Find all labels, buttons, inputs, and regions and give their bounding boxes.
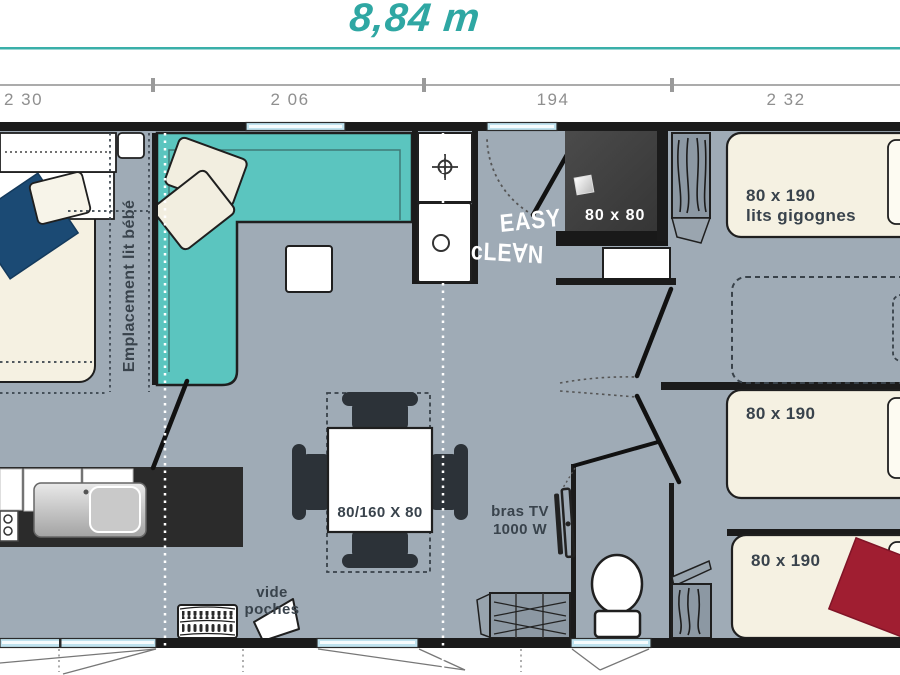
coffee-table (286, 246, 332, 292)
hall-wardrobe (477, 593, 570, 638)
chair (302, 454, 330, 510)
slatted-rack-icon (182, 624, 233, 632)
shower-drain-icon (574, 175, 594, 195)
tv-label-line1: bras TV (478, 503, 562, 520)
pillow (888, 140, 900, 224)
vide-poches-label-line2: poches (240, 601, 304, 618)
chair (352, 530, 408, 558)
pillow (888, 398, 900, 478)
dim-label-3: 194 (513, 90, 593, 110)
dim-tick (151, 78, 155, 92)
dim-label-4: 2 32 (746, 90, 826, 110)
nightstand (118, 133, 144, 158)
utility-unit (418, 133, 472, 202)
headboard (0, 133, 116, 172)
floorplan-page: 8,84 m 2 30 2 06 194 2 32 Emplacement li… (0, 0, 900, 675)
dim-tick (670, 78, 674, 92)
exterior-wall-top (0, 122, 900, 131)
chair (352, 402, 408, 430)
bathroom-cabinet (603, 248, 670, 282)
shower-80x80 (556, 131, 668, 246)
kitchen-cabinet (0, 469, 22, 510)
toilet-tank (595, 611, 640, 637)
baby-bed-zone-label: Emplacement lit bébé (121, 169, 139, 403)
dim-tick (422, 78, 426, 92)
washbasin-unit (418, 203, 471, 282)
table-size-label: 80/160 X 80 (330, 504, 430, 521)
tv-label-line2: 1000 W (478, 521, 562, 538)
bunk-bed-size-label: 80 x 190 (746, 186, 815, 206)
partition-wall (152, 133, 158, 385)
bathroom-wall (657, 131, 668, 241)
slatted-rack (178, 605, 237, 638)
dim-label-2: 2 06 (250, 90, 330, 110)
bottom-bed-size-label: 80 x 190 (751, 551, 820, 571)
sink-basin (90, 487, 140, 532)
toilet-bowl (592, 555, 642, 613)
dim-label-1: 2 30 (4, 90, 43, 110)
wardrobe-top (672, 133, 710, 243)
teal-rule (0, 47, 900, 50)
bathroom-wall (556, 278, 676, 285)
easy-clean-logo-line2: cLE∀N (470, 236, 544, 270)
total-length-title: 8,84 m (0, 0, 832, 41)
door-swing-marks (0, 649, 649, 674)
middle-bed-size-label: 80 x 190 (746, 404, 815, 424)
vide-poches-label-line1: vide (240, 584, 304, 601)
bunk-bed-type-label: lits gigognes (746, 206, 856, 226)
slatted-rack-icon (182, 611, 233, 619)
kitchen-counter (0, 467, 243, 547)
faucet-icon (84, 490, 89, 495)
shower-size-label: 80 x 80 (585, 207, 645, 225)
